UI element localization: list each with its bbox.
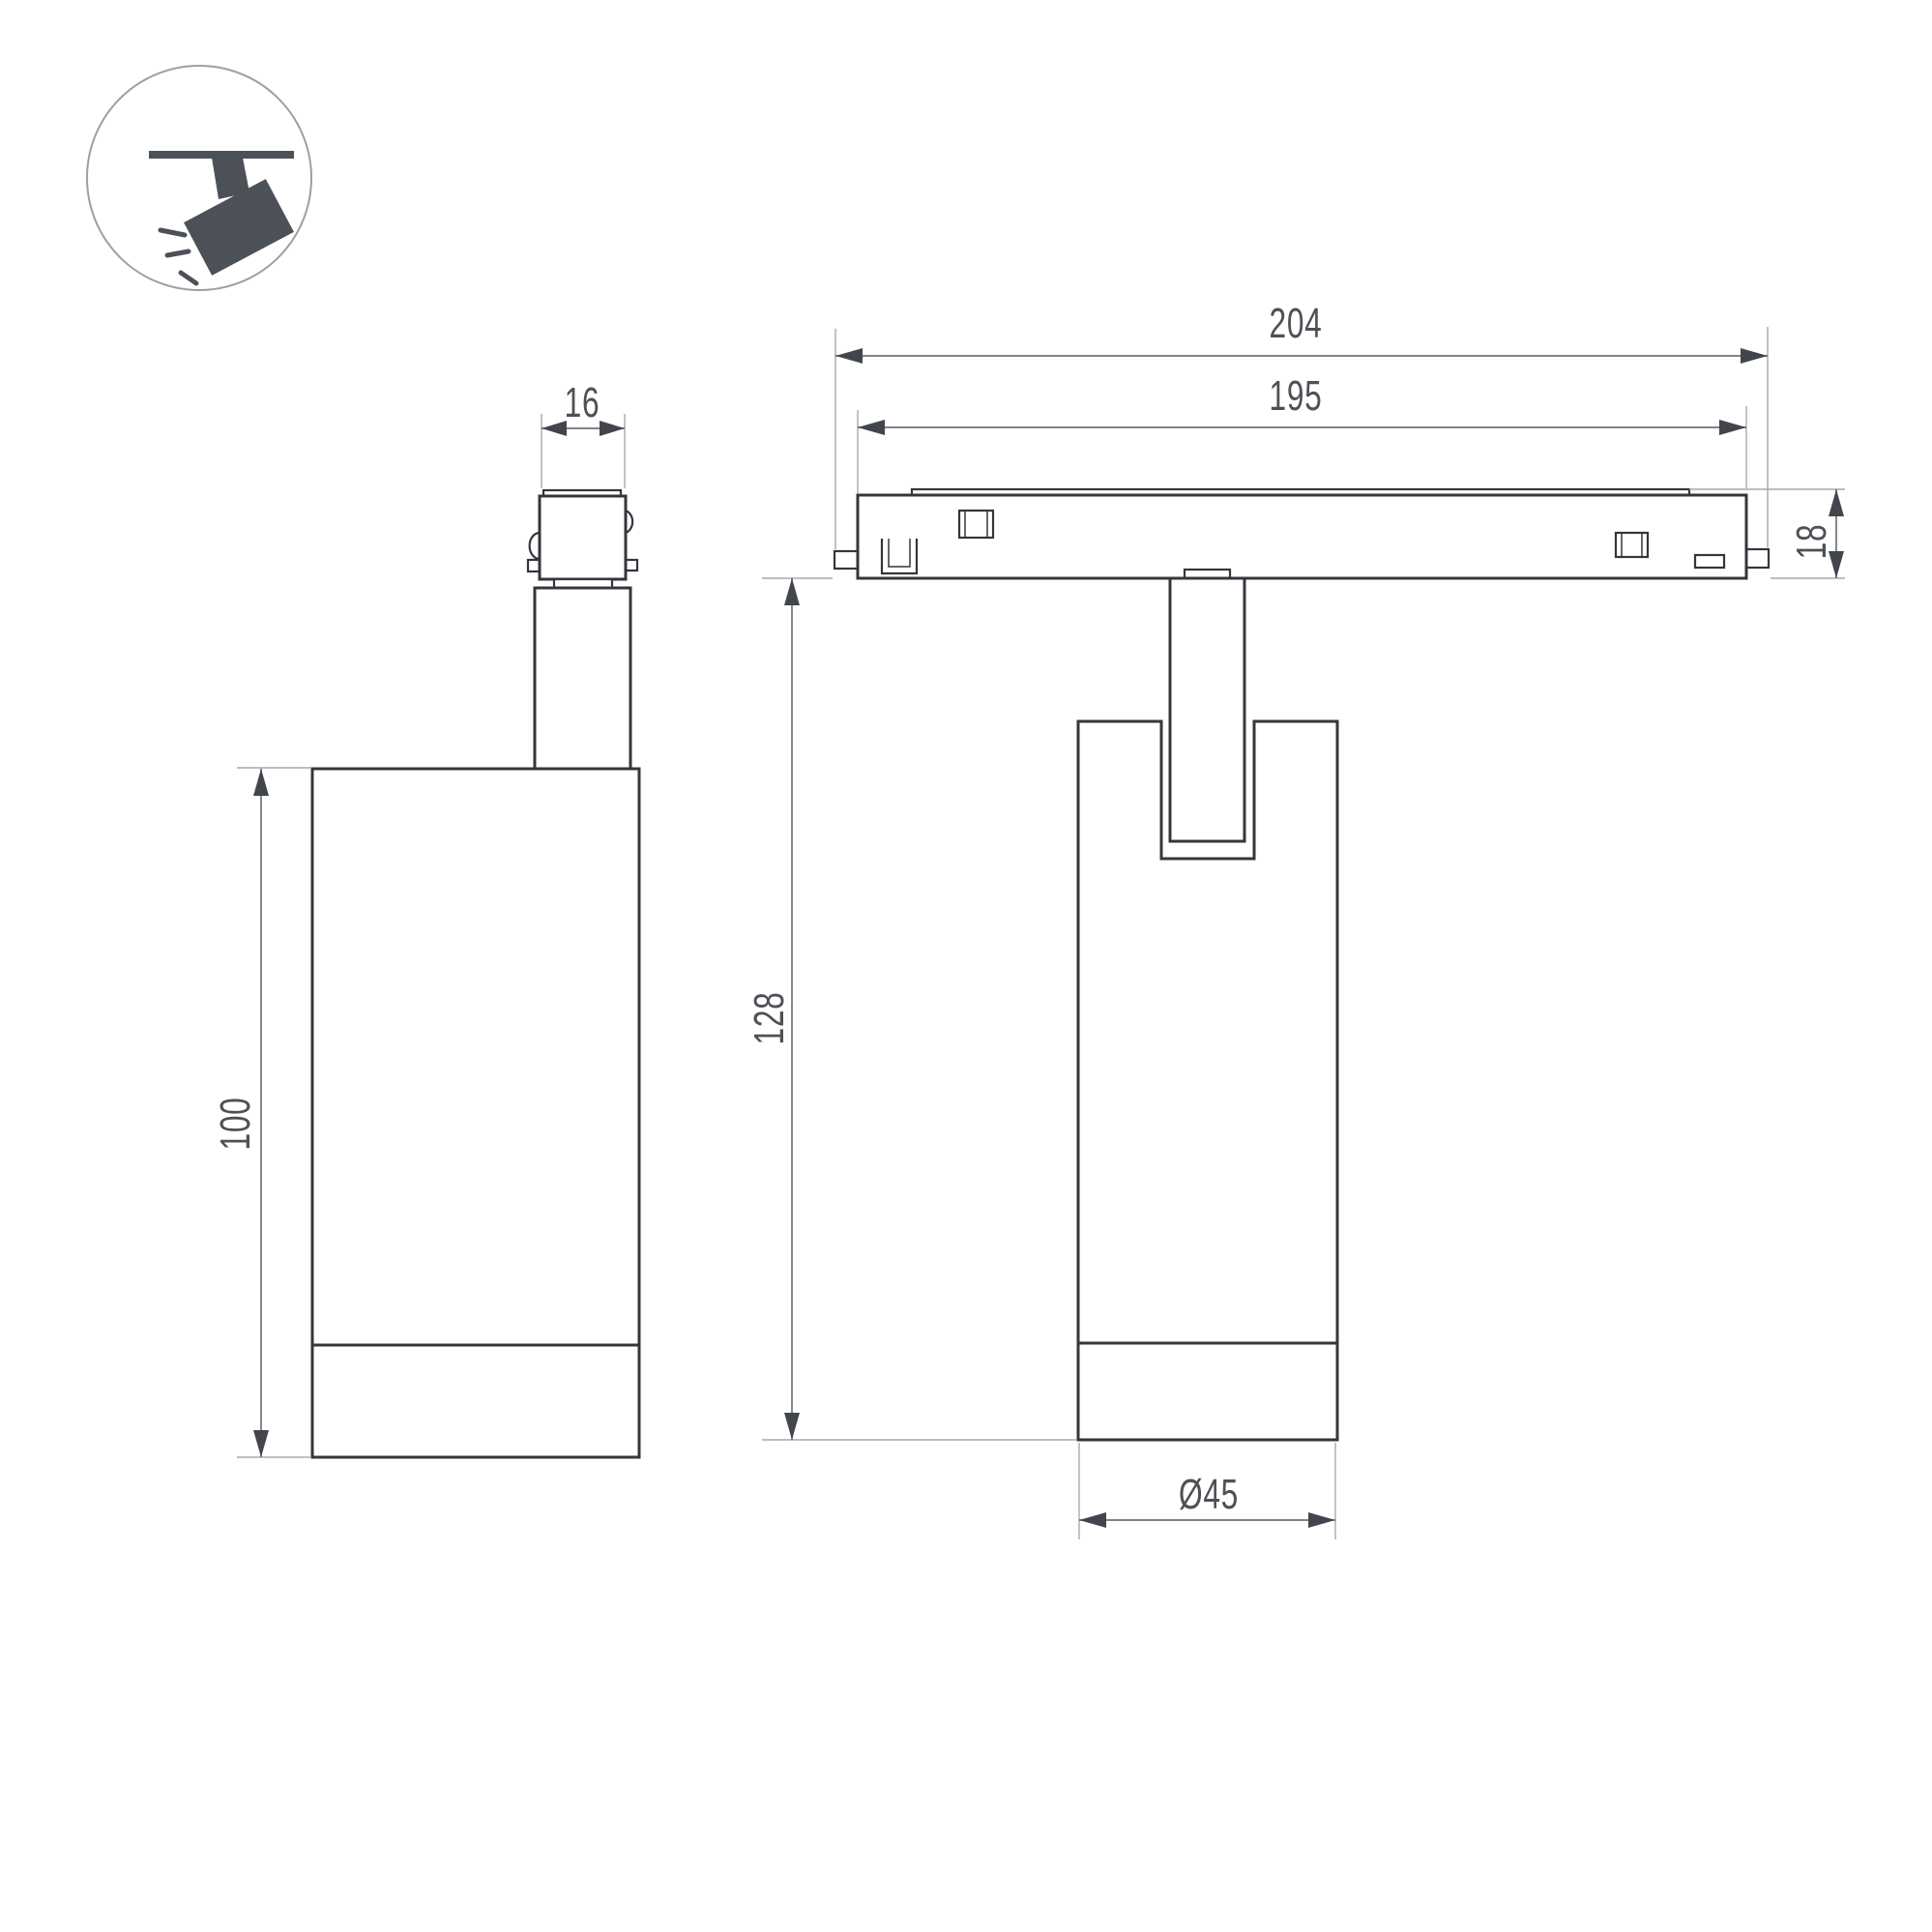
- arrowhead: [542, 421, 567, 436]
- arrowhead: [1719, 420, 1746, 435]
- arrowhead: [253, 1430, 269, 1457]
- track-end-tab-left: [834, 551, 859, 569]
- track-connector: [540, 496, 626, 579]
- dimension-drawing: 16 100: [0, 0, 1932, 1932]
- arrowhead: [835, 348, 863, 364]
- arrowhead: [253, 769, 269, 796]
- dim-label-195: 195: [1269, 372, 1322, 420]
- arrowhead: [1079, 1512, 1106, 1528]
- suspension-stem: [535, 588, 630, 769]
- arrowhead: [858, 420, 885, 435]
- arrowhead: [784, 1413, 800, 1440]
- front-view: 204 195: [746, 300, 1845, 1539]
- icon-ceiling-bar: [149, 151, 294, 159]
- connector-clip-left: [530, 533, 540, 559]
- suspension-stem-front: [1170, 578, 1244, 841]
- dim-label-128: 128: [746, 991, 793, 1044]
- dim-label-18: 18: [1788, 524, 1835, 560]
- arrowhead: [1308, 1512, 1335, 1528]
- dim-overall-height: 128: [746, 578, 1076, 1440]
- track-spotlight-icon: [87, 66, 311, 290]
- arrowhead: [1829, 489, 1844, 516]
- arrowhead: [1741, 348, 1768, 364]
- icon-circle: [87, 66, 311, 290]
- dimension-drawing-page: 16 100: [0, 0, 1932, 1932]
- dim-track-length: 195: [858, 372, 1746, 493]
- track-end-tab-right: [1745, 549, 1769, 568]
- connector-tab-right: [626, 560, 637, 571]
- dim-body-diameter: Ø45: [1079, 1443, 1335, 1539]
- connector-tab-left: [528, 560, 540, 571]
- lamp-body: [312, 769, 639, 1457]
- dim-connector-width: 16: [542, 379, 625, 488]
- dim-body-length: 100: [212, 768, 311, 1457]
- arrowhead: [600, 421, 625, 436]
- dim-label-100: 100: [212, 1097, 259, 1150]
- dim-label-diameter-45: Ø45: [1179, 1471, 1239, 1518]
- dim-label-16: 16: [565, 379, 600, 426]
- arrowhead: [784, 578, 800, 605]
- side-view: 16 100: [212, 379, 639, 1457]
- dim-label-204: 204: [1269, 300, 1322, 347]
